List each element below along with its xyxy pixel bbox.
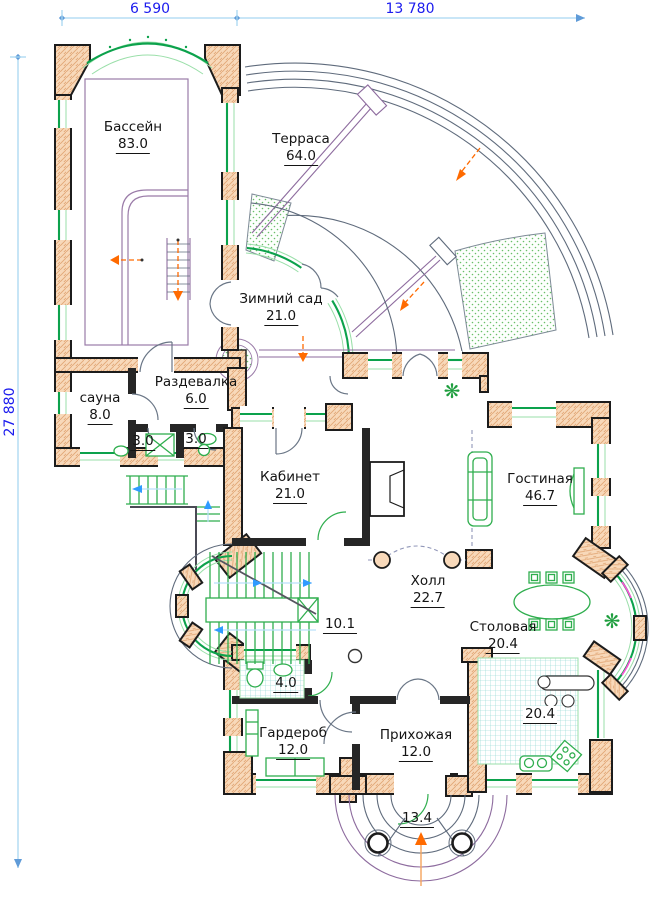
room-label-winter-garden: Зимний сад 21.0 — [239, 291, 322, 326]
room-name: сауна — [80, 390, 121, 406]
room-label-study: Кабинет 21.0 — [260, 469, 320, 504]
room-area: 21.0 — [264, 308, 298, 326]
entrance-porch — [335, 795, 507, 886]
room-name: Зимний сад — [239, 291, 322, 307]
room-name: Бассейн — [104, 119, 162, 135]
toilet-icon — [247, 669, 263, 687]
sink-icon — [114, 446, 128, 456]
plant-icon: ❋ — [444, 379, 461, 403]
room-name: Гардероб — [259, 725, 327, 741]
room-name: Прихожая — [380, 727, 452, 743]
curtain-mark — [622, 582, 631, 598]
hall-column-small — [349, 650, 362, 663]
flower-bed-small — [246, 194, 291, 261]
pool-arched-window — [83, 36, 212, 74]
dimension-top-left: 6 590 — [130, 1, 170, 17]
entrance-hall-double-door — [397, 679, 439, 700]
room-area: 3.0 — [130, 433, 155, 451]
room-name: Кабинет — [260, 469, 320, 485]
room-name: Холл — [411, 573, 446, 589]
room-label-sauna: сауна 8.0 — [80, 390, 121, 425]
room-name: Терраса — [272, 131, 330, 147]
exterior-stairs — [126, 476, 220, 570]
porch-column — [449, 830, 475, 856]
terrace-railings — [245, 63, 613, 373]
room-label-sauna-wc: 3.0 — [183, 431, 208, 449]
room-area: 46.7 — [523, 488, 557, 506]
room-area: 4.0 — [273, 675, 298, 693]
room-area: 13.4 — [400, 810, 434, 828]
stool — [562, 695, 574, 707]
dimension-top-right: 13 780 — [386, 1, 435, 17]
plant-icon: ❋ — [604, 609, 621, 633]
room-area: 21.0 — [273, 486, 307, 504]
column — [444, 552, 460, 568]
room-label-porch: 13.4 — [400, 810, 434, 828]
room-label-terrace: Терраса 64.0 — [272, 131, 330, 166]
study-door — [318, 512, 346, 540]
room-area: 10.1 — [323, 616, 357, 634]
corner-block-sw — [224, 752, 252, 794]
room-label-living-room: Гостиная 46.7 — [507, 471, 573, 506]
room-name: Столовая — [470, 619, 537, 635]
room-label-shower: 3.0 — [130, 433, 155, 451]
room-label-kitchen: 20.4 — [523, 706, 557, 724]
fireplace — [370, 462, 404, 516]
room-area: 64.0 — [284, 148, 318, 166]
kitchen-sink — [520, 756, 552, 771]
room-area: 83.0 — [116, 136, 150, 154]
room-label-wc: 4.0 — [273, 675, 298, 693]
floor-plan-drawing: ❋ ❋ — [0, 0, 668, 900]
pool-terrace-door — [210, 280, 240, 327]
dimension-left: 27 880 — [2, 388, 18, 437]
room-label-pool: Бассейн 83.0 — [104, 119, 162, 154]
room-label-hall: Холл 22.7 — [411, 573, 446, 608]
floor-plan-page: ❋ ❋ — [0, 0, 668, 900]
study-entry-door — [276, 428, 302, 454]
curtain-mark — [622, 658, 631, 675]
flower-bed-large — [455, 233, 556, 349]
room-area: 20.4 — [523, 706, 557, 724]
room-label-dining-room: Столовая 20.4 — [470, 619, 537, 654]
room-area: 22.7 — [411, 590, 445, 608]
room-label-stairs: 10.1 — [323, 616, 357, 634]
room-area: 8.0 — [87, 407, 112, 425]
room-area: 3.0 — [183, 431, 208, 449]
stool — [538, 676, 550, 688]
room-area: 20.4 — [486, 636, 520, 654]
hall-colonnade — [368, 546, 466, 568]
column — [374, 552, 390, 568]
room-area: 12.0 — [276, 742, 310, 760]
sofa — [468, 452, 492, 526]
room-area: 6.0 — [183, 391, 208, 409]
room-name: Раздевалка — [155, 374, 238, 390]
porch-column — [365, 830, 391, 856]
room-name: Гостиная — [507, 471, 573, 487]
room-area: 12.0 — [399, 744, 433, 762]
room-label-wardrobe: Гардероб 12.0 — [259, 725, 327, 760]
room-label-entrance-hall: Прихожая 12.0 — [380, 727, 452, 762]
room-label-changing-room: Раздевалка 6.0 — [155, 374, 238, 409]
terrace-rail-radial-right — [352, 237, 456, 337]
wardrobe-inner-door — [324, 712, 356, 744]
